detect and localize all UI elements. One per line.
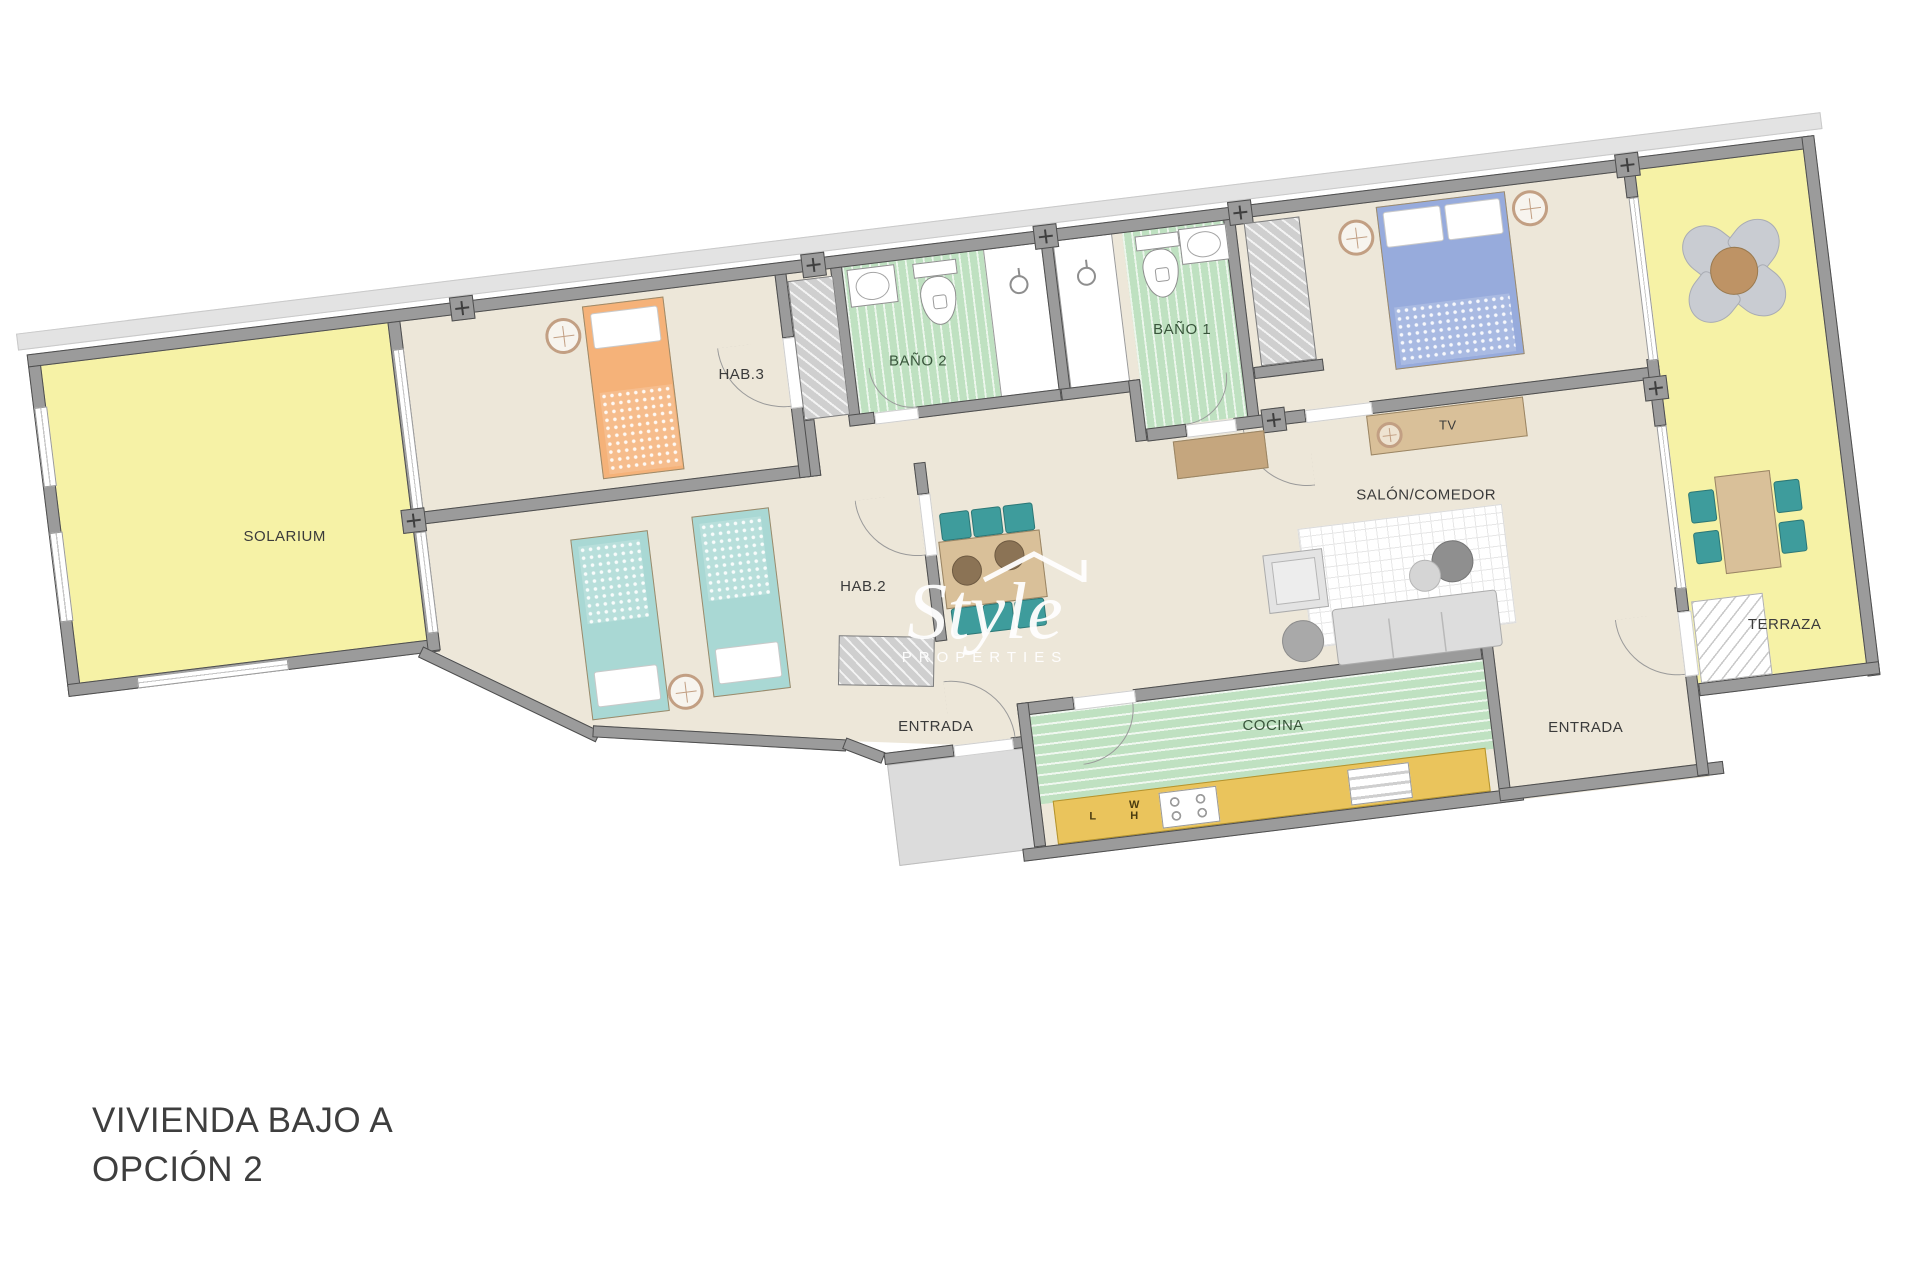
room-label-entrada-1: ENTRADA (898, 719, 973, 734)
room-label-cocina: COCINA (1242, 718, 1303, 733)
armchair (1262, 548, 1329, 614)
floorplan-page: SOLARIUM HAB.3 BAÑO 2 BAÑO 1 HAB.2 SALÓN… (0, 0, 1920, 1280)
dining-chair (939, 510, 972, 541)
stove (1158, 786, 1220, 829)
bed-blanket-pattern (699, 516, 770, 601)
dining-chair (1002, 502, 1035, 533)
plan-title-line2: OPCIÓN 2 (92, 1145, 393, 1194)
terrace-chair (1688, 489, 1718, 524)
bed-pillow (1444, 198, 1504, 241)
solarium-floor (40, 322, 430, 692)
toilet (912, 259, 963, 328)
washbasin (1178, 223, 1230, 265)
dining-chair (971, 506, 1004, 537)
terrace-chair (1778, 519, 1808, 554)
terrace-table (1714, 470, 1782, 574)
wall-junction-marker (1643, 375, 1670, 402)
toilet (1135, 231, 1186, 300)
plan-title-line1: VIVIENDA BAJO A (92, 1096, 393, 1145)
wall-junction-marker (449, 295, 476, 322)
room-label-entrada-2: ENTRADA (1548, 720, 1623, 735)
appliance-label-wh: W H (1129, 800, 1140, 822)
plan-title: VIVIENDA BAJO A OPCIÓN 2 (92, 1096, 393, 1194)
appliance-letter-h: H (1130, 810, 1138, 822)
room-label-terraza: TERRAZA (1748, 617, 1822, 632)
kitchen-sink (1347, 762, 1413, 805)
agency-watermark: Style PROPERTIES (830, 548, 1140, 666)
toilet-bowl (1140, 247, 1182, 300)
watermark-subtitle: PROPERTIES (830, 649, 1140, 666)
entry-porch (887, 748, 1036, 866)
terrace-chair (1693, 530, 1723, 565)
wall-junction-marker (1032, 223, 1059, 250)
toilet-bowl (918, 274, 960, 327)
exterior-stairs (1691, 593, 1772, 683)
wall-junction-marker (1261, 407, 1288, 434)
washbasin (846, 264, 898, 308)
room-label-hab3: HAB.3 (718, 367, 764, 382)
bed-blanket-pattern (578, 539, 649, 624)
bed-pillow (1382, 205, 1444, 248)
room-label-solarium: SOLARIUM (244, 529, 326, 544)
bed-blanket-pattern (600, 384, 682, 474)
watermark-brand: Style (830, 575, 1140, 649)
terrace-chair (1773, 478, 1803, 513)
wall-junction-marker (1614, 152, 1641, 179)
appliance-label-l: L (1089, 812, 1096, 823)
room-label-bano2: BAÑO 2 (889, 353, 947, 368)
room-label-bano1: BAÑO 1 (1153, 322, 1211, 337)
room-label-salon: SALÓN/COMEDOR (1356, 488, 1496, 503)
wall-junction-marker (400, 507, 427, 534)
tv-label: TV (1439, 418, 1457, 431)
wall-junction-marker (800, 252, 827, 279)
